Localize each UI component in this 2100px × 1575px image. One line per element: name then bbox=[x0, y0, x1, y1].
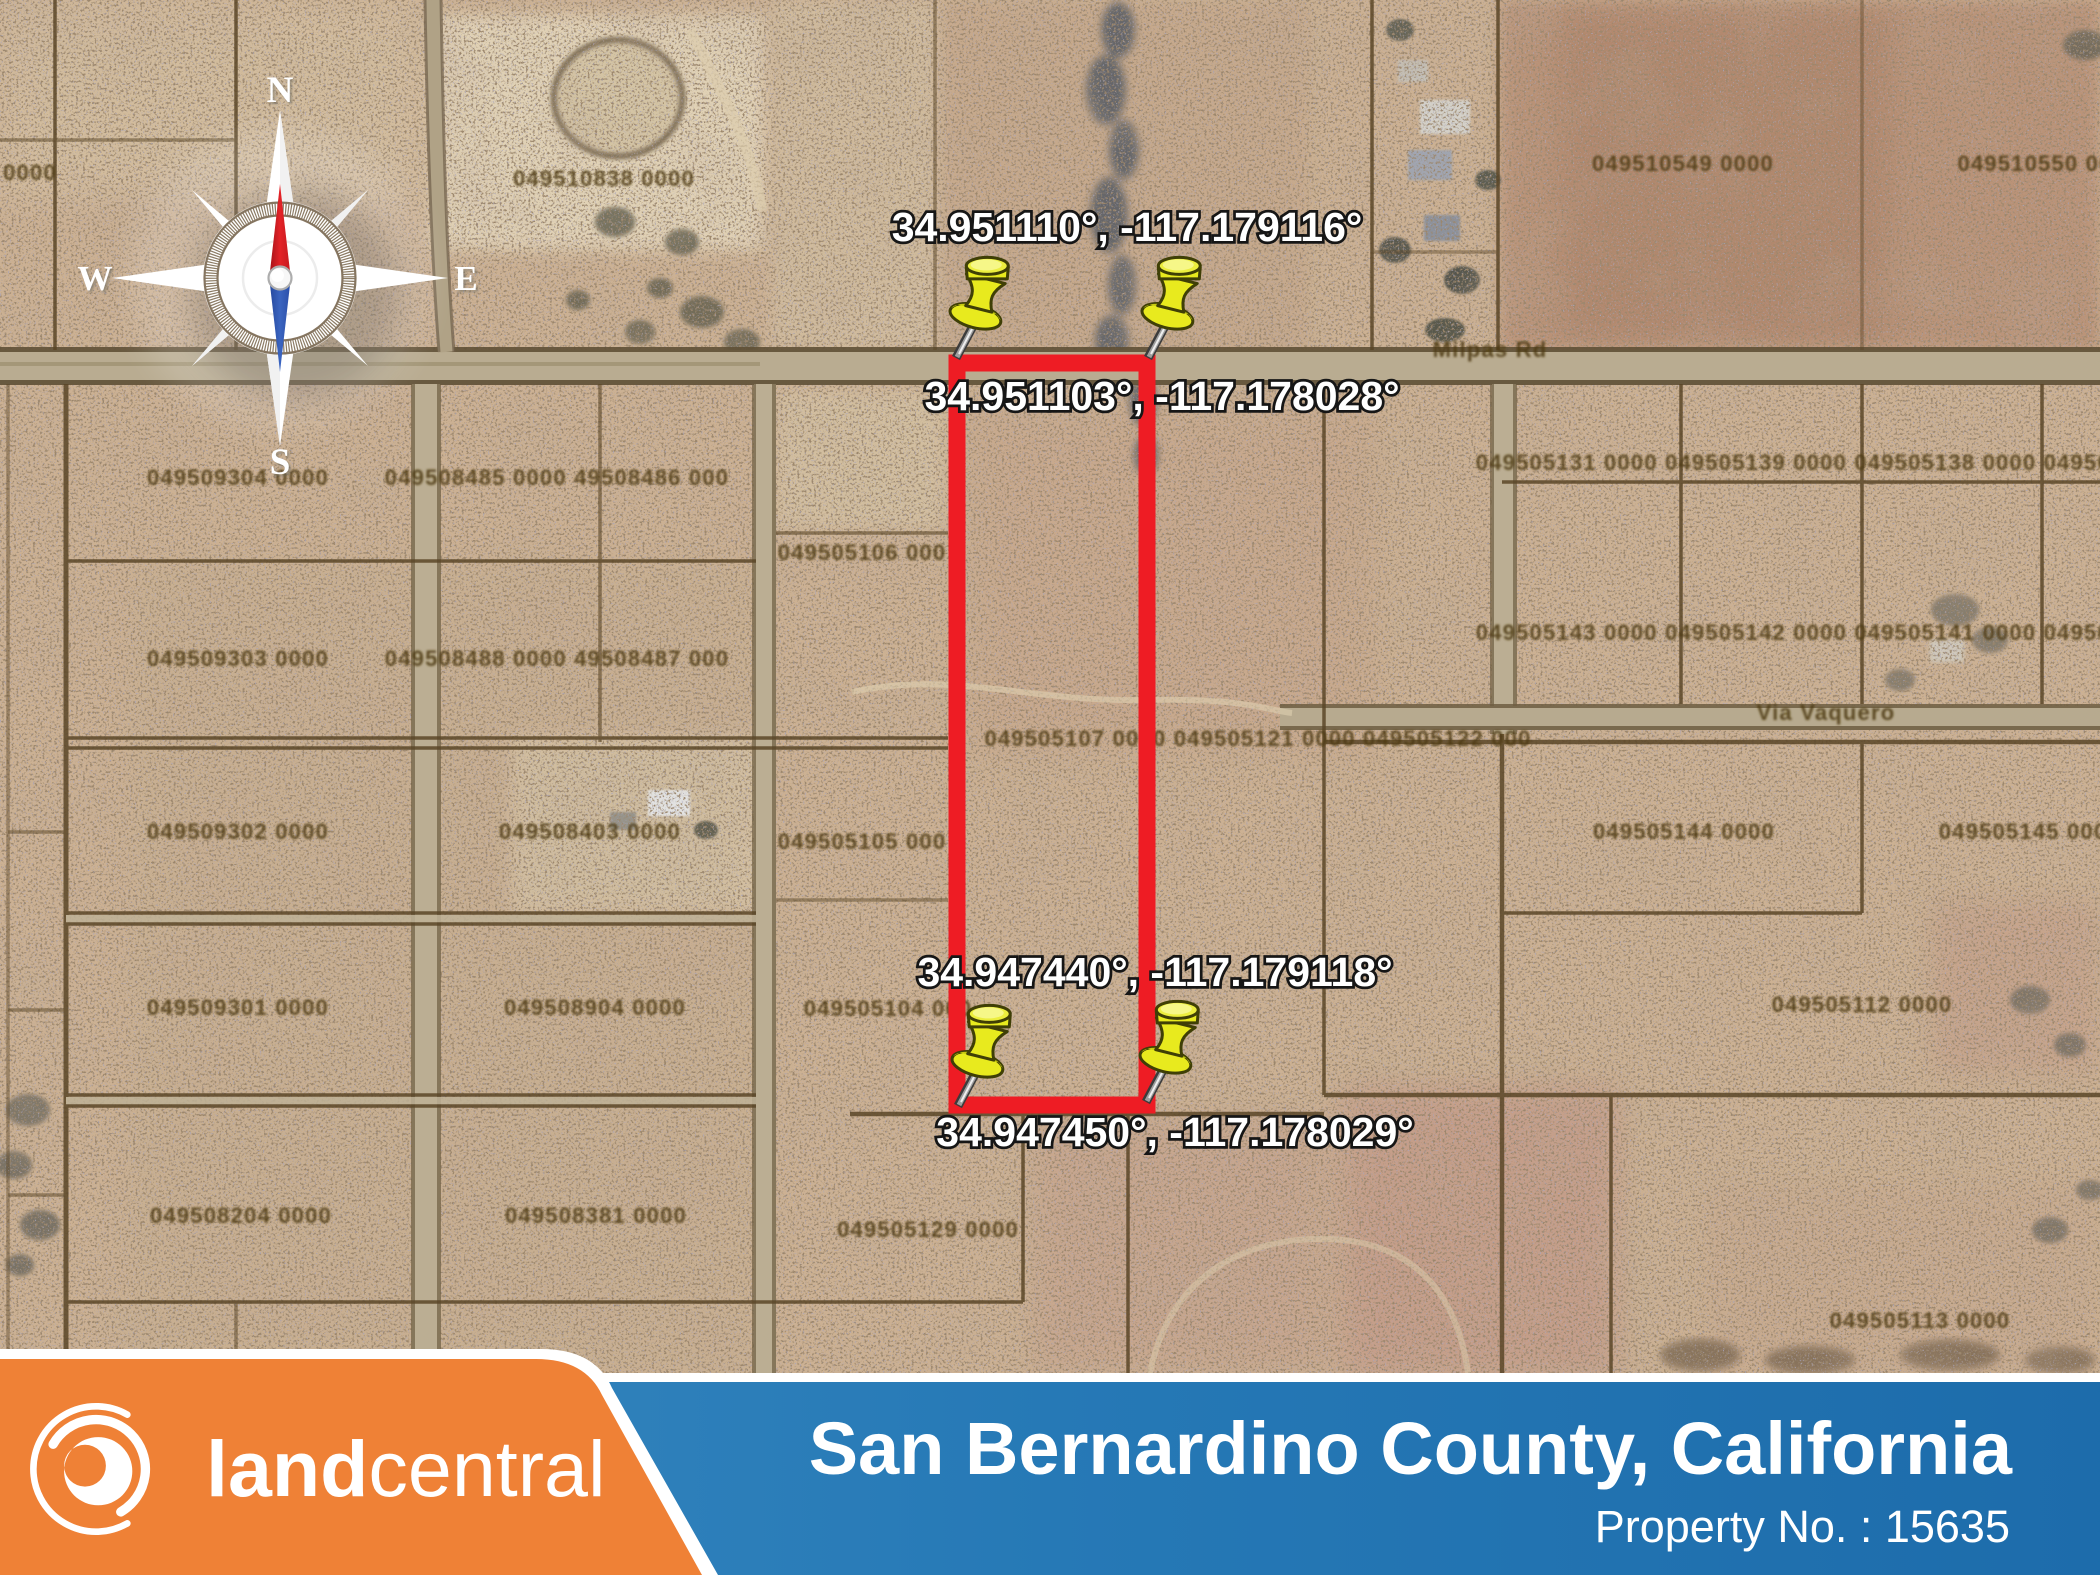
svg-text:049509303 0000: 049509303 0000 bbox=[147, 646, 329, 671]
svg-text:049505107 0000 049505121 0000: 049505107 0000 049505121 0000 049505122 … bbox=[984, 726, 1531, 751]
svg-text:049505112 0000: 049505112 0000 bbox=[1772, 992, 1953, 1017]
svg-text:049505104 000: 049505104 000 bbox=[804, 996, 973, 1021]
svg-text:S: S bbox=[270, 442, 291, 483]
svg-text:049505105 000: 049505105 000 bbox=[778, 829, 947, 854]
svg-text:049510838 0000: 049510838 0000 bbox=[513, 166, 695, 191]
svg-text:34.947450°, -117.178029°: 34.947450°, -117.178029° bbox=[936, 1109, 1413, 1155]
svg-text:049509302 0000: 049509302 0000 bbox=[147, 819, 329, 844]
svg-text:049509304 0000: 049509304 0000 bbox=[147, 465, 329, 490]
svg-text:049508381 0000: 049508381 0000 bbox=[505, 1203, 687, 1228]
svg-text:0000: 0000 bbox=[3, 160, 57, 185]
svg-text:049505106 000: 049505106 000 bbox=[778, 540, 947, 565]
svg-text:W: W bbox=[78, 259, 113, 298]
svg-text:049505145 000: 049505145 000 bbox=[1939, 819, 2100, 844]
svg-text:049508403 0000: 049508403 0000 bbox=[499, 819, 681, 844]
svg-text:049508904 0000: 049508904 0000 bbox=[504, 995, 686, 1020]
svg-text:049505144 0000: 049505144 0000 bbox=[1593, 819, 1775, 844]
svg-text:E: E bbox=[454, 259, 477, 298]
svg-text:049505113 0000: 049505113 0000 bbox=[1830, 1308, 2011, 1333]
svg-text:049510549 0000: 049510549 0000 bbox=[1592, 151, 1774, 176]
svg-text:049505131 0000 049505139 0000: 049505131 0000 049505139 0000 049505138 … bbox=[1476, 450, 2100, 475]
svg-text:049505143 0000 049505142 0000: 049505143 0000 049505142 0000 049505141 … bbox=[1476, 620, 2100, 645]
svg-text:Property No. : 15635: Property No. : 15635 bbox=[1595, 1501, 2010, 1552]
svg-text:049508488 0000 49508487 000: 049508488 0000 49508487 000 bbox=[385, 646, 729, 671]
svg-text:049509301 0000: 049509301 0000 bbox=[147, 995, 329, 1020]
svg-text:049508204 0000: 049508204 0000 bbox=[150, 1203, 332, 1228]
svg-text:N: N bbox=[267, 70, 294, 111]
svg-text:landcentral: landcentral bbox=[206, 1424, 606, 1513]
svg-text:34.951103°, -117.178028°: 34.951103°, -117.178028° bbox=[924, 373, 1399, 419]
svg-text:San Bernardino County, Califor: San Bernardino County, California bbox=[809, 1407, 2013, 1490]
svg-text:Milpas Rd: Milpas Rd bbox=[1433, 337, 1548, 362]
svg-text:Via Vaquero: Via Vaquero bbox=[1757, 700, 1896, 725]
svg-text:34.947440°, -117.179118°: 34.947440°, -117.179118° bbox=[917, 949, 1392, 995]
svg-text:34.951110°, -117.179116°: 34.951110°, -117.179116° bbox=[892, 204, 1363, 250]
svg-text:049508485 0000 49508486 000: 049508485 0000 49508486 000 bbox=[385, 465, 729, 490]
svg-text:049510550 00: 049510550 00 bbox=[1957, 151, 2100, 176]
svg-text:049505129 0000: 049505129 0000 bbox=[837, 1217, 1019, 1242]
